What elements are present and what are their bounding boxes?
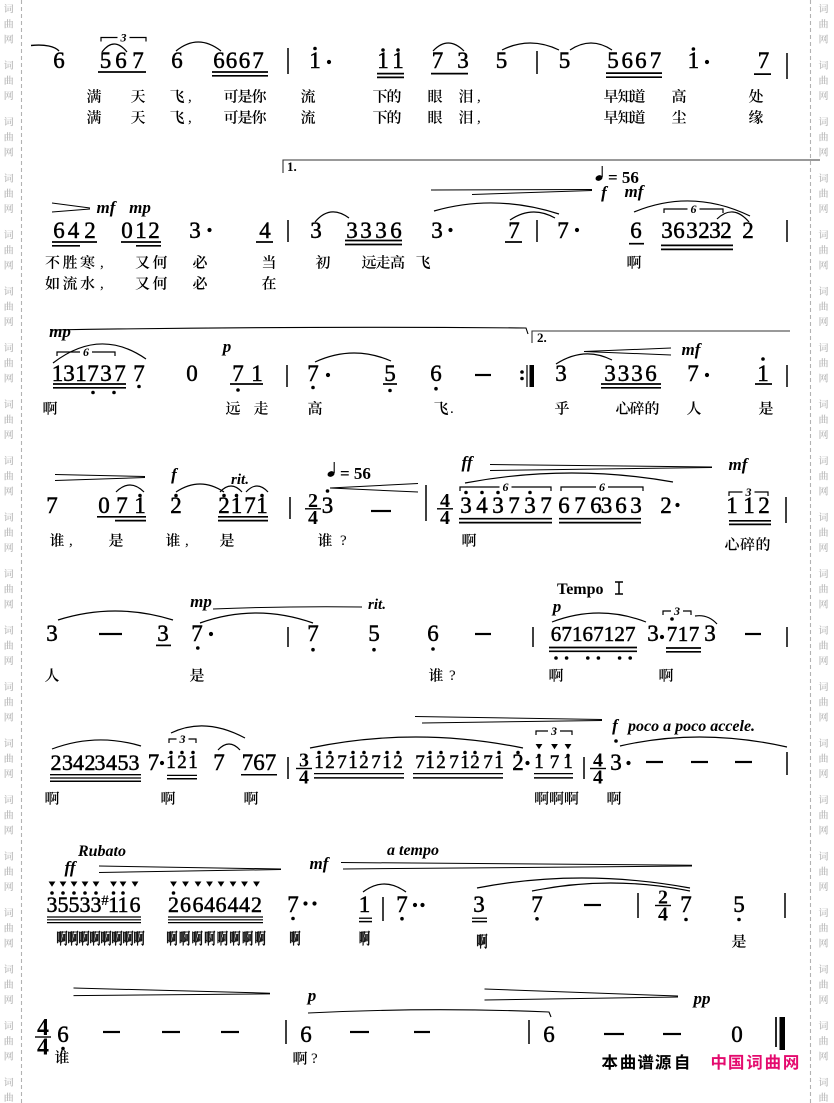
svg-text:7: 7 — [116, 493, 128, 518]
svg-text:3: 3 — [555, 361, 567, 386]
svg-text:4: 4 — [658, 904, 668, 926]
svg-text:3: 3 — [610, 750, 622, 775]
svg-text:mf: mf — [682, 340, 703, 359]
svg-text:5: 5 — [496, 48, 508, 73]
svg-text:7: 7 — [287, 892, 299, 917]
svg-text:6: 6 — [558, 493, 570, 518]
svg-text:5: 5 — [69, 892, 80, 917]
svg-text:3: 3 — [80, 892, 91, 917]
svg-text:4: 4 — [440, 507, 450, 529]
svg-text:1: 1 — [425, 752, 435, 773]
svg-text:,: , — [69, 533, 73, 549]
svg-text:7: 7 — [213, 750, 225, 775]
svg-text:3: 3 — [630, 493, 642, 518]
svg-text:6: 6 — [216, 892, 227, 917]
svg-text:7: 7 — [687, 361, 699, 386]
svg-text:6: 6 — [599, 480, 605, 494]
svg-text:5: 5 — [559, 48, 571, 73]
svg-text:Tempo: Tempo — [557, 581, 604, 598]
svg-text:ff: ff — [64, 858, 77, 877]
svg-text:1: 1 — [359, 892, 371, 917]
svg-text:3: 3 — [189, 218, 201, 243]
svg-text:7: 7 — [561, 622, 572, 646]
svg-text:6: 6 — [115, 48, 127, 73]
svg-text:4: 4 — [593, 767, 603, 789]
svg-text:6: 6 — [630, 218, 642, 243]
svg-text:f: f — [612, 716, 620, 735]
svg-text:2: 2 — [84, 218, 96, 243]
svg-text:1: 1 — [604, 622, 615, 646]
svg-text:1: 1 — [743, 493, 755, 518]
svg-text:2: 2 — [359, 752, 369, 773]
svg-text:6: 6 — [390, 218, 402, 243]
svg-text:3: 3 — [473, 892, 485, 917]
svg-text:1: 1 — [52, 361, 64, 386]
svg-text:?: ? — [311, 1051, 318, 1067]
svg-text:5: 5 — [733, 892, 745, 917]
svg-text:7: 7 — [650, 48, 662, 73]
svg-text:7: 7 — [307, 361, 319, 386]
svg-text:7: 7 — [432, 48, 444, 73]
svg-text:7: 7 — [87, 361, 99, 386]
svg-text:7: 7 — [689, 622, 700, 646]
svg-text:6: 6 — [300, 1022, 312, 1047]
svg-text:3: 3 — [46, 621, 58, 646]
svg-text:5: 5 — [100, 48, 112, 73]
svg-text:7: 7 — [114, 361, 126, 386]
svg-text:4: 4 — [476, 493, 488, 518]
svg-text:1: 1 — [348, 752, 358, 773]
svg-text:mf: mf — [310, 854, 331, 873]
svg-text:3: 3 — [100, 361, 112, 386]
svg-text:pp: pp — [692, 989, 711, 1008]
svg-text:6: 6 — [615, 493, 627, 518]
svg-text:,: , — [188, 89, 192, 105]
svg-text:4: 4 — [204, 892, 215, 917]
svg-text:7: 7 — [132, 48, 144, 73]
svg-text:mf: mf — [729, 455, 750, 474]
svg-text:5: 5 — [607, 48, 619, 73]
svg-text:7: 7 — [557, 218, 569, 243]
svg-text:,: , — [100, 255, 104, 271]
svg-text:7: 7 — [148, 750, 160, 775]
svg-text:7: 7 — [680, 892, 692, 917]
svg-text:6: 6 — [226, 48, 238, 73]
svg-text:p: p — [306, 986, 317, 1005]
svg-text:6: 6 — [180, 892, 191, 917]
svg-text:0: 0 — [731, 1022, 743, 1047]
svg-text:7: 7 — [133, 361, 145, 386]
svg-text:3: 3 — [310, 218, 322, 243]
svg-text:1: 1 — [188, 752, 198, 773]
svg-text:1: 1 — [251, 361, 263, 386]
svg-text:2: 2 — [51, 750, 62, 775]
svg-text:1: 1 — [534, 752, 544, 773]
svg-text:5: 5 — [384, 361, 396, 386]
svg-text:7: 7 — [574, 493, 586, 518]
svg-text:3: 3 — [120, 31, 127, 45]
svg-text:2: 2 — [660, 493, 672, 518]
svg-text:5: 5 — [58, 892, 69, 917]
svg-text:7: 7 — [625, 622, 636, 646]
svg-text:7: 7 — [593, 622, 604, 646]
svg-text:,: , — [477, 110, 481, 126]
svg-text:3: 3 — [673, 604, 680, 618]
svg-text:7: 7 — [396, 892, 408, 917]
svg-text:4: 4 — [73, 750, 84, 775]
svg-text:3: 3 — [346, 218, 358, 243]
svg-text:3: 3 — [63, 361, 75, 386]
svg-text:7: 7 — [415, 752, 425, 773]
svg-text:6: 6 — [53, 48, 65, 73]
svg-text:3: 3 — [375, 218, 387, 243]
svg-text:mf: mf — [97, 198, 118, 217]
svg-text:poco a poco accele.: poco a poco accele. — [626, 718, 755, 735]
svg-text:3: 3 — [460, 493, 472, 518]
svg-text:ff: ff — [461, 453, 474, 472]
svg-text:2: 2 — [325, 752, 335, 773]
svg-text:1: 1 — [563, 752, 573, 773]
svg-text:6: 6 — [622, 48, 634, 73]
svg-text:2: 2 — [758, 493, 770, 518]
svg-text:7: 7 — [667, 622, 678, 646]
svg-text:mp: mp — [49, 322, 71, 341]
svg-text:4: 4 — [68, 218, 80, 243]
svg-text:p: p — [551, 597, 562, 616]
svg-text:4: 4 — [259, 218, 271, 243]
svg-text:6: 6 — [691, 202, 697, 216]
svg-text:4: 4 — [308, 507, 318, 529]
svg-text:6: 6 — [583, 622, 594, 646]
svg-text:7: 7 — [508, 218, 520, 243]
svg-text:7: 7 — [531, 892, 543, 917]
svg-text:6: 6 — [53, 218, 65, 243]
svg-text:3: 3 — [686, 218, 698, 243]
svg-text:3: 3 — [618, 361, 630, 386]
svg-text:6: 6 — [543, 1022, 555, 1047]
svg-text:mp: mp — [190, 592, 212, 611]
svg-text:2: 2 — [251, 892, 262, 917]
svg-text:7: 7 — [46, 493, 58, 518]
svg-text:1: 1 — [726, 493, 738, 518]
svg-text:6: 6 — [673, 218, 685, 243]
svg-text:3: 3 — [360, 218, 372, 243]
svg-text:2: 2 — [436, 752, 446, 773]
svg-text:5: 5 — [368, 621, 380, 646]
svg-text:6: 6 — [130, 892, 141, 917]
svg-text:7: 7 — [337, 752, 347, 773]
svg-text:7: 7 — [508, 493, 520, 518]
svg-text:7: 7 — [244, 493, 256, 518]
svg-text:1: 1 — [460, 752, 470, 773]
svg-text:6: 6 — [193, 892, 204, 917]
svg-text:1: 1 — [118, 892, 129, 917]
svg-text:0: 0 — [98, 493, 110, 518]
svg-text:3: 3 — [604, 361, 616, 386]
svg-text:1: 1 — [314, 752, 324, 773]
svg-text:1: 1 — [75, 361, 87, 386]
svg-text:7: 7 — [371, 752, 381, 773]
svg-text:3: 3 — [457, 48, 469, 73]
svg-text:2: 2 — [614, 622, 625, 646]
svg-text:7: 7 — [449, 752, 459, 773]
svg-text:2: 2 — [720, 218, 732, 243]
svg-text:3: 3 — [95, 750, 106, 775]
svg-text:6: 6 — [253, 750, 265, 775]
svg-text:3: 3 — [91, 892, 102, 917]
svg-text:4: 4 — [299, 767, 309, 789]
svg-text:,: , — [477, 89, 481, 105]
svg-text:1: 1 — [678, 622, 689, 646]
svg-text:7: 7 — [307, 621, 319, 646]
svg-text:2.: 2. — [537, 330, 547, 345]
svg-text:7: 7 — [232, 361, 244, 386]
svg-text:?: ? — [340, 533, 347, 549]
svg-text:2: 2 — [742, 218, 754, 243]
svg-text:1: 1 — [135, 218, 147, 243]
svg-text:6: 6 — [427, 621, 439, 646]
svg-text:3: 3 — [647, 621, 659, 646]
svg-text:7: 7 — [758, 48, 770, 73]
svg-text:6: 6 — [171, 48, 183, 73]
svg-text:a tempo: a tempo — [387, 842, 439, 859]
svg-text:3: 3 — [157, 621, 169, 646]
svg-text:1: 1 — [309, 48, 321, 73]
svg-text:3: 3 — [709, 218, 721, 243]
svg-text:2: 2 — [698, 218, 710, 243]
svg-text:7: 7 — [242, 750, 254, 775]
svg-text:,: , — [188, 110, 192, 126]
svg-text:3: 3 — [431, 218, 443, 243]
svg-text:6: 6 — [57, 1022, 69, 1047]
svg-text:3: 3 — [524, 493, 536, 518]
svg-text:rit.: rit. — [368, 597, 386, 613]
svg-text:3: 3 — [661, 218, 673, 243]
svg-text:1: 1 — [166, 752, 176, 773]
svg-text:mp: mp — [129, 198, 151, 217]
svg-text:6: 6 — [503, 480, 509, 494]
svg-text:6: 6 — [645, 361, 657, 386]
svg-text:7: 7 — [252, 48, 264, 73]
svg-text:3: 3 — [550, 724, 557, 738]
svg-text:.: . — [450, 401, 454, 417]
svg-text:3: 3 — [601, 493, 613, 518]
svg-text:rit.: rit. — [231, 472, 249, 488]
svg-text:,: , — [100, 276, 104, 292]
svg-text:3: 3 — [179, 732, 186, 746]
svg-text:6: 6 — [213, 48, 225, 73]
svg-text:2: 2 — [148, 218, 160, 243]
svg-text:1: 1 — [494, 752, 504, 773]
svg-text:1: 1 — [382, 752, 392, 773]
svg-text:2: 2 — [168, 892, 179, 917]
svg-text:7: 7 — [191, 621, 203, 646]
svg-text:0: 0 — [186, 361, 198, 386]
svg-text:,: , — [185, 533, 189, 549]
svg-text:= 56: = 56 — [340, 464, 371, 483]
svg-text:3: 3 — [322, 493, 334, 518]
svg-text:6: 6 — [430, 361, 442, 386]
svg-text:3: 3 — [704, 621, 716, 646]
svg-text:5: 5 — [118, 750, 129, 775]
svg-text:7: 7 — [550, 752, 560, 773]
svg-text:2: 2 — [470, 752, 480, 773]
svg-text:4: 4 — [106, 750, 117, 775]
svg-text:1: 1 — [572, 622, 583, 646]
svg-text:4: 4 — [228, 892, 239, 917]
svg-text:4: 4 — [239, 892, 250, 917]
svg-text:1: 1 — [688, 48, 700, 73]
svg-text:6: 6 — [551, 622, 562, 646]
svg-text:2: 2 — [177, 752, 187, 773]
svg-text:Rubato: Rubato — [77, 843, 126, 860]
svg-text:?: ? — [449, 668, 456, 684]
svg-text:7: 7 — [483, 752, 493, 773]
svg-text:4: 4 — [37, 1035, 49, 1061]
svg-text:p: p — [221, 337, 232, 356]
svg-text:3: 3 — [62, 750, 73, 775]
svg-text:1.: 1. — [287, 159, 297, 174]
svg-text:2: 2 — [393, 752, 403, 773]
svg-text:f: f — [171, 465, 179, 484]
svg-text:3: 3 — [47, 892, 58, 917]
svg-text:mf: mf — [625, 182, 646, 201]
svg-text:3: 3 — [492, 493, 504, 518]
svg-text:6: 6 — [635, 48, 647, 73]
svg-text:3: 3 — [631, 361, 643, 386]
svg-text:0: 0 — [121, 218, 133, 243]
svg-text:6: 6 — [239, 48, 251, 73]
svg-text:1: 1 — [757, 361, 769, 386]
svg-text:7: 7 — [540, 493, 552, 518]
svg-text:7: 7 — [265, 750, 277, 775]
svg-text:3: 3 — [129, 750, 140, 775]
